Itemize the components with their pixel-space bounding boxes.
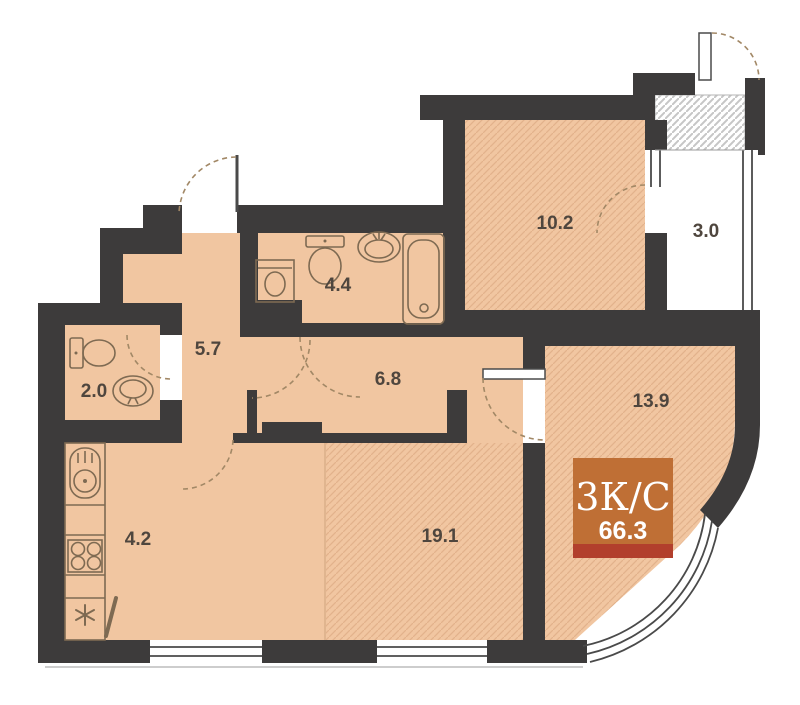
entrance-door (179, 155, 237, 214)
secondary-entrance-door (699, 33, 759, 80)
hallway-area-label: 5.7 (195, 339, 221, 360)
bathroom-area-label: 4.4 (325, 275, 352, 296)
room-13-9-area-label: 13.9 (633, 391, 670, 412)
window-bedroom-balcony (645, 150, 667, 187)
living-area-label: 19.1 (422, 526, 459, 547)
wc-area-label: 2.0 (81, 381, 107, 402)
badge-total-area: 66.3 (599, 517, 648, 545)
apartment-badge: 3К/С 66.3 (573, 458, 673, 558)
badge-type-label: 3К/С (575, 475, 670, 519)
room-wc-floor (65, 325, 160, 420)
bedroom-area-label: 10.2 (537, 213, 574, 234)
balcony-glazing (738, 150, 758, 310)
corridor-area-label: 6.8 (375, 369, 401, 390)
shaft-hatch (655, 95, 745, 150)
window-bottom-middle (377, 640, 487, 663)
balcony-area-label: 3.0 (693, 221, 719, 242)
window-bottom-left (150, 640, 262, 663)
kitchen-area-label: 4.2 (125, 529, 151, 550)
floor-plan-page: 5.7 2.0 4.4 6.8 10.2 3.0 13.9 4.2 19.1 3… (0, 0, 800, 705)
corridor-throat-floor (460, 433, 523, 443)
floor-plan-drawing: 5.7 2.0 4.4 6.8 10.2 3.0 13.9 4.2 19.1 3… (0, 0, 800, 705)
badge-strip (573, 544, 673, 558)
